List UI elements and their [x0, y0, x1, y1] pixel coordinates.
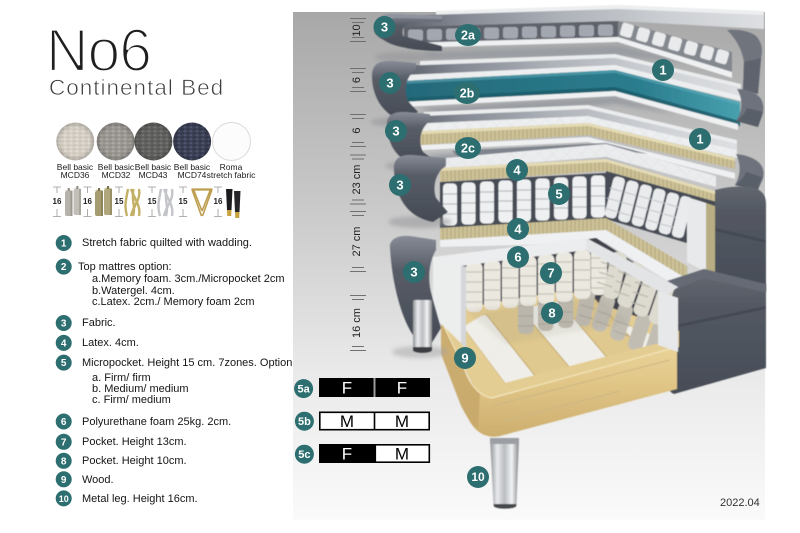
svg-text:23 cm: 23 cm — [351, 165, 363, 195]
svg-text:15: 15 — [179, 197, 188, 206]
svg-text:4: 4 — [61, 339, 67, 350]
svg-text:10: 10 — [59, 494, 69, 504]
svg-text:6: 6 — [351, 127, 363, 133]
svg-text:2022.04: 2022.04 — [720, 497, 760, 509]
svg-text:27 cm: 27 cm — [351, 227, 363, 257]
svg-text:2a: 2a — [461, 29, 476, 43]
svg-text:16 cm: 16 cm — [351, 308, 363, 338]
svg-text:10: 10 — [351, 24, 363, 36]
svg-text:5a: 5a — [297, 384, 310, 396]
svg-text:2: 2 — [61, 262, 67, 273]
svg-text:2c: 2c — [461, 142, 475, 156]
svg-text:4: 4 — [513, 163, 521, 178]
svg-text:M: M — [340, 412, 354, 431]
svg-text:9: 9 — [461, 351, 468, 366]
svg-text:1: 1 — [696, 132, 703, 147]
svg-text:1: 1 — [659, 63, 666, 78]
svg-text:6: 6 — [514, 250, 521, 265]
svg-text:10: 10 — [471, 470, 485, 484]
svg-text:4: 4 — [514, 222, 522, 237]
svg-text:1: 1 — [61, 239, 67, 250]
svg-text:8: 8 — [548, 306, 555, 321]
svg-text:16: 16 — [214, 197, 223, 206]
svg-text:5c: 5c — [298, 449, 310, 461]
svg-text:3: 3 — [386, 76, 393, 91]
svg-text:6: 6 — [351, 77, 363, 83]
svg-text:9: 9 — [61, 475, 67, 486]
svg-text:6: 6 — [61, 417, 67, 428]
svg-text:5: 5 — [61, 358, 67, 369]
svg-text:3: 3 — [396, 178, 403, 193]
svg-text:3: 3 — [410, 265, 417, 280]
svg-text:8: 8 — [61, 456, 67, 467]
svg-text:3: 3 — [381, 20, 388, 35]
svg-text:2b: 2b — [460, 87, 475, 101]
svg-text:M: M — [395, 412, 409, 431]
svg-text:7: 7 — [61, 437, 67, 448]
svg-text:7: 7 — [547, 266, 554, 281]
svg-text:5b: 5b — [298, 416, 311, 428]
svg-text:F: F — [397, 379, 407, 398]
svg-text:15: 15 — [115, 197, 124, 206]
svg-text:F: F — [342, 379, 352, 398]
svg-text:15: 15 — [148, 197, 157, 206]
svg-text:3: 3 — [61, 319, 67, 330]
svg-text:M: M — [395, 445, 409, 464]
svg-text:5: 5 — [555, 187, 562, 202]
svg-text:16: 16 — [83, 197, 92, 206]
svg-text:16: 16 — [53, 197, 62, 206]
svg-text:3: 3 — [392, 124, 399, 139]
svg-text:F: F — [342, 445, 352, 464]
